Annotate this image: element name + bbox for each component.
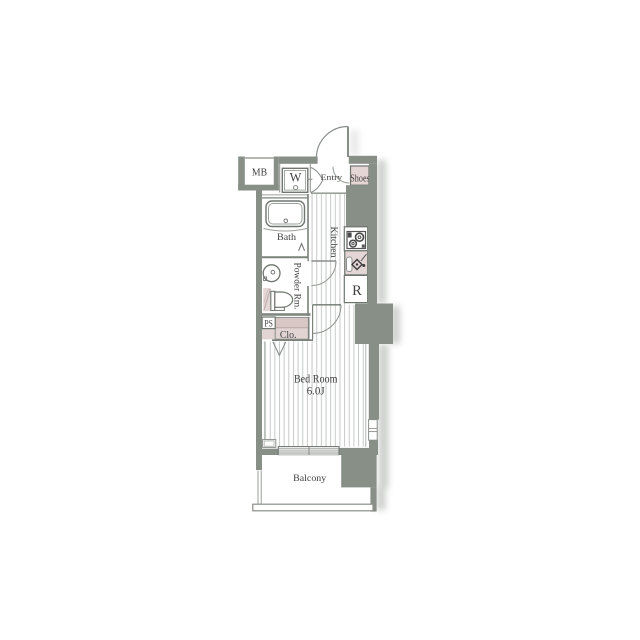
svg-text:Kitchen: Kitchen [328, 227, 339, 258]
svg-text:6.0J: 6.0J [307, 386, 326, 398]
svg-text:Bath: Bath [277, 232, 296, 243]
svg-text:Shoes: Shoes [350, 174, 370, 185]
svg-text:Balcony: Balcony [293, 474, 326, 484]
svg-text:Clo.: Clo. [280, 330, 297, 341]
svg-text:W: W [290, 171, 302, 185]
svg-text:MB: MB [252, 168, 267, 179]
svg-text:R: R [352, 283, 362, 299]
svg-text:Bed Room: Bed Room [294, 373, 338, 385]
svg-text:Powder Rm.: Powder Rm. [292, 263, 302, 310]
svg-text:PS: PS [264, 319, 273, 329]
